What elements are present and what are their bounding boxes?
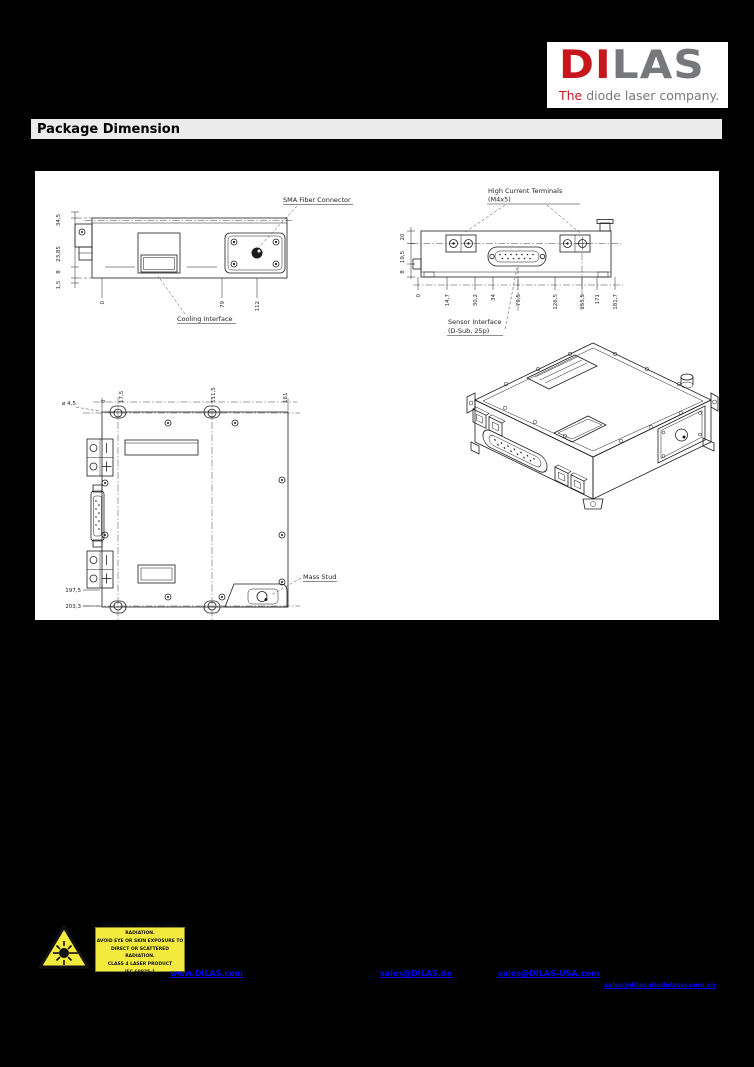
email-germany-link[interactable]: sales@DILAS.de <box>380 969 452 978</box>
dim-label: ø 4,5 <box>62 401 76 407</box>
dim-label: 111,5 <box>211 387 217 403</box>
dim-label: 19,5 <box>400 250 406 263</box>
section-title: Package Dimension <box>37 122 180 137</box>
dim-label: 14,7 <box>445 294 451 307</box>
dim-label: 20 <box>400 233 406 240</box>
top-label-plate <box>527 355 597 389</box>
top-view-drawing: 34,5 23,85 8 1,5 0 79 112 SMA Fiber Conn… <box>56 196 353 324</box>
dim-label: 34,5 <box>56 213 62 226</box>
dim-label: 0 <box>100 301 106 305</box>
email-usa-link[interactable]: sales@DILAS-USA.com <box>498 969 599 978</box>
logo-tagline: The diode laser company. <box>559 88 728 103</box>
sma-connector-label: SMA Fiber Connector <box>283 196 351 204</box>
dim-label: 126,5 <box>553 294 559 310</box>
dim-label: 161 <box>283 393 289 404</box>
dim-label: 203,3 <box>65 604 81 610</box>
rear-view-drawing: 0 14,7 30,2 34 79,5 126,5 155,5 171 181,… <box>400 187 623 336</box>
isometric-view-drawing <box>467 343 718 509</box>
package-dimension-drawing: 34,5 23,85 8 1,5 0 79 112 SMA Fiber Conn… <box>35 171 719 620</box>
dim-label: 17,5 <box>119 390 125 403</box>
drawing-panel: 34,5 23,85 8 1,5 0 79 112 SMA Fiber Conn… <box>35 171 719 620</box>
iso-terminals-front <box>555 464 587 496</box>
sensor-interface-label-line1: Sensor Interface <box>448 318 501 326</box>
dim-label: 155,5 <box>580 294 586 310</box>
dim-label: 8 <box>400 270 406 274</box>
warning-line: AVOID EYE OR SKIN EXPOSURE TO <box>96 938 184 946</box>
dim-label: 0 <box>101 399 107 403</box>
email-china-link[interactable]: sales@dilas-diodelaser.com.cn <box>604 981 715 989</box>
sma-connector-plate <box>225 233 285 273</box>
terminals-label-line1: High Current Terminals <box>488 187 563 195</box>
warning-line: VISIBLE AND INVISIBLE LASER RADIATION. <box>96 923 184 938</box>
stud-label: Mass Stud <box>303 573 336 581</box>
label-plate <box>125 440 198 455</box>
logo-word-red: DI <box>559 43 612 88</box>
cooling-interface-label: Cooling Interface <box>177 315 233 323</box>
logo-word-gray: LAS <box>612 43 705 88</box>
warning-line: CLASS 4 LASER PRODUCT <box>96 961 184 969</box>
dim-label: 30,2 <box>473 294 479 306</box>
laser-warning-icon <box>38 924 90 970</box>
dim-label: 79 <box>220 301 226 308</box>
power-terminal-block-bottom <box>87 551 113 588</box>
dim-label: 23,85 <box>56 246 62 262</box>
datasheet-page: DILAS The diode laser company. Package D… <box>0 0 754 1067</box>
bottom-view-drawing: Mass Stud 0 17,5 111,5 161 ø 4,5 197,5 2… <box>62 387 337 620</box>
dsub-connector <box>488 247 546 266</box>
dim-label: 0 <box>416 294 422 298</box>
sensor-interface-label-line2: (D-Sub, 25p) <box>448 327 489 335</box>
dim-label: 1,5 <box>56 280 62 289</box>
logo-wordmark: DILAS <box>559 46 742 87</box>
dim-label: 181,7 <box>613 294 619 310</box>
dim-label: 171 <box>595 294 601 305</box>
cooling-interface-feature <box>138 233 180 273</box>
iso-terminals-left <box>473 406 505 438</box>
terminals-label-line2: (M4x5) <box>488 196 511 204</box>
section-header: Package Dimension <box>31 119 722 139</box>
dim-label: 79,5 <box>516 294 522 307</box>
dim-label: 8 <box>56 270 62 274</box>
power-terminal-block-top <box>87 439 113 476</box>
dim-label: 197,5 <box>65 588 81 594</box>
dilas-logo: DILAS The diode laser company. <box>547 42 728 108</box>
iso-knob <box>681 374 693 388</box>
website-link[interactable]: www.DILAS.com <box>170 969 243 978</box>
dim-label: 34 <box>491 294 497 301</box>
side-connector <box>75 224 92 247</box>
sma-fiber-port <box>252 248 263 259</box>
iso-dsub-connector <box>483 427 547 475</box>
laser-warning-label: VISIBLE AND INVISIBLE LASER RADIATION. A… <box>95 927 185 972</box>
mounting-screws <box>102 420 285 600</box>
dim-label: 112 <box>255 301 261 312</box>
warning-line: DIRECT OR SCATTERED RADIATION. <box>96 946 184 961</box>
stud-tab <box>225 584 287 607</box>
